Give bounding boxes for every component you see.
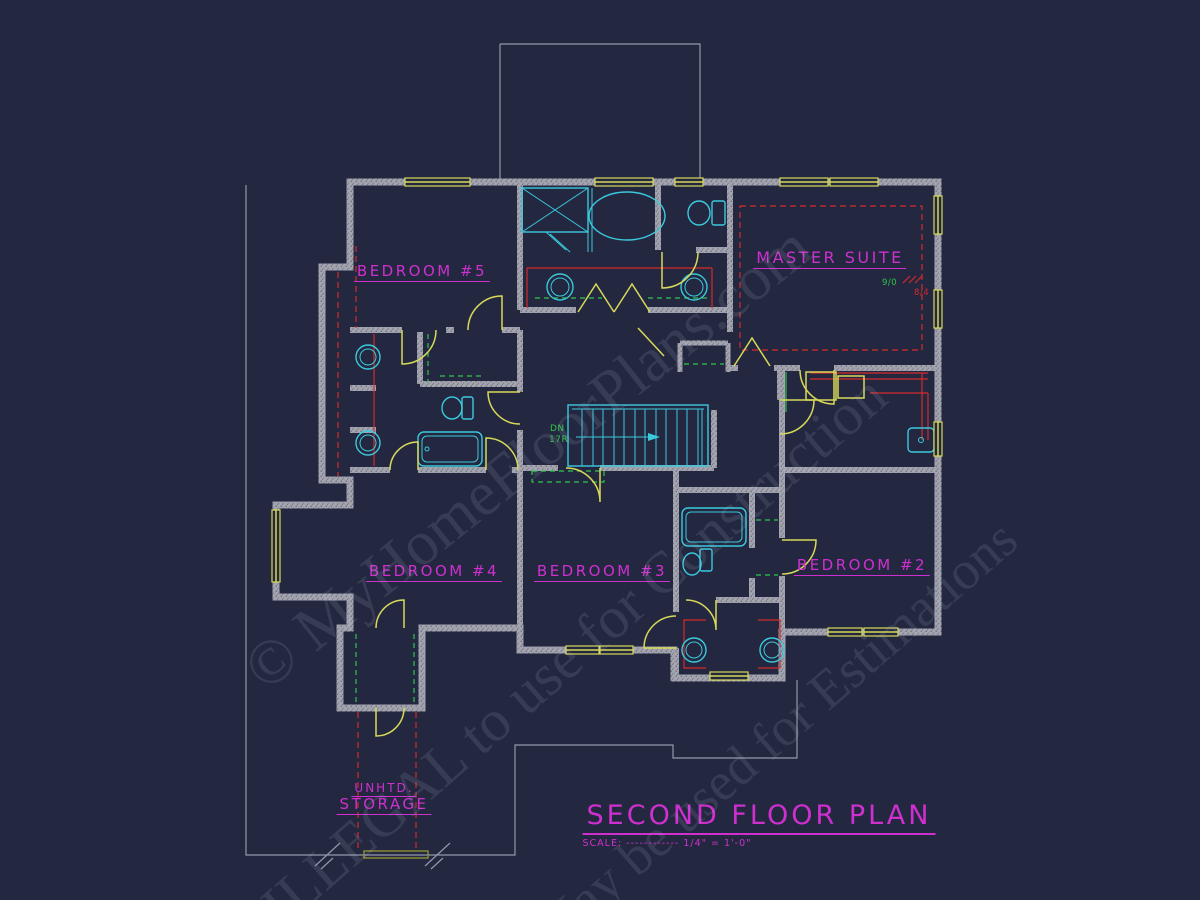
door-swings — [376, 252, 834, 736]
hall-bath-tub — [418, 432, 482, 466]
scale-note: SCALE: ------------ 1/4" = 1'-0" — [583, 838, 936, 849]
ceiling-height-8-4: 8/4 — [914, 288, 929, 298]
door-bedroom5 — [468, 296, 502, 330]
window — [272, 510, 280, 582]
door-master-closet — [800, 370, 834, 404]
window — [780, 178, 828, 186]
bath2-toilet — [683, 549, 712, 575]
label-storage-line2: STORAGE — [337, 795, 432, 815]
door-bedroom3 — [566, 468, 600, 502]
attic-access — [908, 428, 934, 452]
label-bedroom5: BEDROOM #5 — [354, 262, 490, 282]
window — [595, 178, 653, 186]
window — [934, 290, 942, 328]
floor-plan-drawing — [0, 0, 1200, 900]
shower — [522, 188, 592, 252]
door-storage — [376, 708, 404, 736]
label-bedroom2: BEDROOM #2 — [794, 556, 930, 576]
door-water-closet — [662, 252, 698, 288]
window — [864, 628, 898, 636]
vanity-sinks — [547, 274, 707, 300]
closet-builtins — [806, 372, 864, 400]
stairs-down-label: DN — [550, 424, 565, 434]
window — [405, 178, 470, 186]
hall-bath-sinks — [356, 345, 380, 455]
window — [828, 628, 862, 636]
door-bath2-tubroom — [686, 600, 716, 630]
label-bedroom3: BEDROOM #3 — [534, 562, 670, 582]
door-bath-bedroom4 — [390, 442, 418, 470]
page-title: SECOND FLOOR PLAN — [583, 800, 936, 835]
label-bedroom4: BEDROOM #4 — [366, 562, 502, 582]
label-master-suite: MASTER SUITE — [753, 248, 906, 269]
window — [934, 196, 942, 234]
ceiling-and-counter-lines — [338, 206, 928, 848]
door-vestibule-leaf — [638, 328, 664, 356]
floor-plan-canvas: BEDROOM #5 MASTER SUITE BEDROOM #4 BEDRO… — [0, 0, 1200, 900]
door-bath2-vanity — [644, 616, 676, 648]
ceiling-height-9-0: 9/0 — [882, 278, 897, 288]
bath2-sinks — [682, 638, 784, 662]
toilet — [688, 201, 725, 225]
ceiling-break-hatch — [903, 276, 922, 283]
hall-bath-toilet — [442, 397, 473, 419]
window — [934, 422, 942, 456]
window — [600, 646, 633, 654]
window — [830, 178, 878, 186]
stair-direction-arrow — [648, 433, 660, 441]
window — [675, 178, 703, 186]
stairs-riser-label: 17R — [549, 435, 568, 445]
title-block: SECOND FLOOR PLAN SCALE: ------------ 1/… — [583, 800, 936, 849]
bath2-tub — [682, 508, 746, 546]
door-bay-upper — [376, 600, 404, 628]
window — [566, 646, 599, 654]
doors-master-bath — [578, 284, 650, 312]
door-toilet-room — [488, 392, 520, 424]
door-bedroom4 — [486, 438, 518, 470]
window — [710, 672, 748, 680]
door-hall — [780, 400, 814, 434]
stairs — [568, 405, 708, 466]
tub — [589, 192, 665, 240]
